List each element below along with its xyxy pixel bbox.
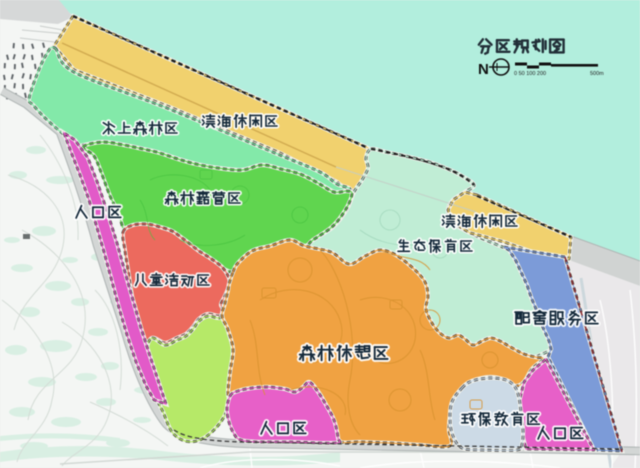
svg-text:0 50 100 200: 0 50 100 200 bbox=[514, 71, 546, 77]
svg-text:N: N bbox=[478, 61, 489, 78]
svg-text:500m: 500m bbox=[590, 71, 604, 77]
